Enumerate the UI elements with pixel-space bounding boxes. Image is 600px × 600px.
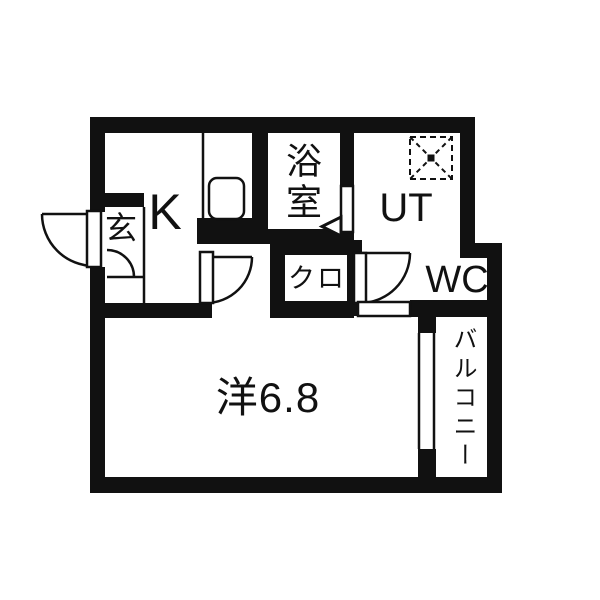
wall-room-top-left bbox=[90, 303, 212, 318]
wall-wc-bottom bbox=[410, 300, 502, 317]
bathroom-label: 浴室 bbox=[283, 142, 319, 224]
washing-machine-pan-icon bbox=[410, 137, 452, 179]
closet-label: クロ bbox=[288, 266, 346, 293]
kitchen-label: K bbox=[148, 187, 181, 237]
floorplan: K 玄 浴室 UT クロ WC 洋6.8 バルコニー bbox=[0, 0, 600, 600]
main-room-label: 洋6.8 bbox=[216, 377, 320, 419]
wall-top bbox=[90, 117, 475, 133]
wc-door-leaf bbox=[354, 253, 366, 303]
kitchen-door-leaf bbox=[200, 252, 213, 303]
wall-right-lower bbox=[487, 243, 502, 493]
wall-bottom bbox=[90, 477, 502, 493]
window-stub-top bbox=[418, 317, 436, 333]
entrance-door-leaf bbox=[87, 211, 101, 267]
bath-door-panel bbox=[341, 186, 353, 232]
wall-entrance-stub bbox=[90, 193, 144, 207]
entrance-label: 玄 bbox=[105, 212, 137, 244]
window-stub-bottom bbox=[418, 449, 436, 480]
kitchen-sink-icon bbox=[209, 178, 244, 219]
wc-door-threshold bbox=[358, 302, 410, 316]
entrance-inner-arc-icon bbox=[107, 250, 134, 277]
wall-left-lower bbox=[90, 267, 105, 493]
wall-right-ut bbox=[460, 117, 475, 245]
wc-door-arc-icon bbox=[360, 253, 410, 303]
utility-label: UT bbox=[379, 188, 432, 228]
balcony-label: バルコニー bbox=[450, 327, 474, 472]
toilet-label: WC bbox=[425, 261, 488, 299]
wall-bath-right-upper bbox=[340, 133, 354, 186]
floorplan-drawing bbox=[0, 0, 600, 600]
wall-room-top-mid bbox=[270, 303, 354, 318]
washer-pan-center-dot bbox=[428, 155, 435, 162]
